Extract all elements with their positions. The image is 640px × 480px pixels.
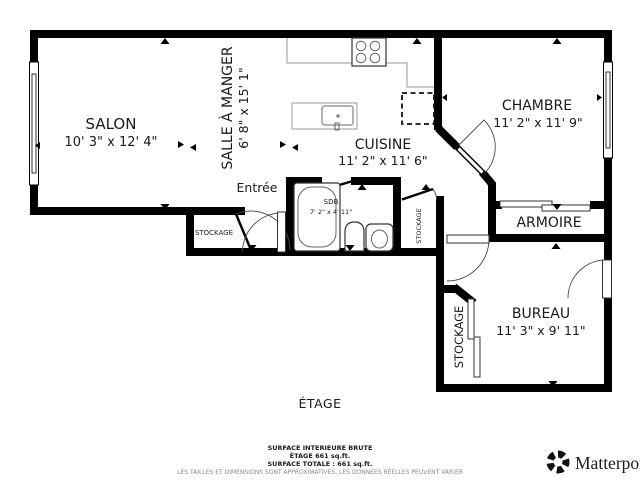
dimension-arrow-icon	[178, 141, 184, 148]
door-icon-couloir	[447, 235, 489, 281]
room-label-sdb: SDB	[324, 198, 339, 206]
room-label-entree: Entrée	[237, 180, 278, 195]
window-icon-left	[30, 62, 39, 185]
room-label-stockage-salon: STOCKAGE	[195, 229, 233, 237]
matterport-wordmark: Matterport	[575, 453, 640, 473]
measure-tick-icon	[413, 38, 422, 44]
room-label-salon: SALON	[86, 115, 137, 133]
footer: ÉTAGE SURFACE INTERIEURE BRUTE ÉTAGE 661…	[177, 396, 463, 476]
floor-plan-page: SALON 10' 3" x 12' 4" SALLE À MANGER 6' …	[0, 0, 640, 480]
door-icon-hall-closet	[402, 189, 437, 200]
room-dims-cuisine: 11' 2" x 11' 6"	[338, 153, 427, 168]
room-dims-salon: 10' 3" x 12' 4"	[65, 135, 158, 150]
stove-icon	[352, 38, 386, 66]
room-dims-salle-a-manger: 6' 8" x 15' 1"	[236, 67, 251, 148]
bathtub-icon	[294, 183, 340, 251]
sliding-door-icon-bureau-closet	[468, 299, 480, 377]
room-dims-chambre: 11' 2" x 11' 9"	[493, 115, 582, 130]
footer-etage-surface: ÉTAGE 661 sq.ft.	[290, 451, 351, 460]
footer-surface-brute: SURFACE INTERIEURE BRUTE	[268, 444, 373, 452]
door-icon-bureau	[568, 260, 612, 298]
dimension-arrow-icon	[292, 144, 298, 151]
toilet-icon	[366, 224, 393, 251]
measure-tick-icon	[161, 38, 170, 44]
room-label-salle-a-manger: SALLE À MANGER	[219, 46, 236, 169]
matterport-logo-icon	[548, 452, 568, 472]
room-label-stockage-bureau: STOCKAGE	[452, 306, 466, 369]
footer-disclaimer: LES TAILLES ET DIMENSIONS SONT APPROXIMA…	[177, 468, 463, 476]
kitchen-fixtures	[287, 38, 434, 130]
room-label-stockage-couloir: STOCKAGE	[415, 208, 423, 243]
dimension-arrow-icon	[280, 141, 286, 148]
room-dims-sdb: 7' 2" x 4' 11"	[310, 208, 352, 216]
room-label-armoire: ARMOIRE	[516, 215, 581, 231]
island-sink-icon	[292, 103, 357, 130]
measure-tick-icon	[552, 243, 561, 249]
floor-plan-svg: SALON 10' 3" x 12' 4" SALLE À MANGER 6' …	[0, 0, 640, 480]
dimension-arrow-icon	[190, 144, 196, 151]
room-label-cuisine: CUISINE	[355, 137, 412, 153]
room-label-chambre: CHAMBRE	[502, 98, 572, 114]
dimension-arrow-icon	[597, 94, 602, 101]
room-dims-bureau: 11' 3" x 9' 11"	[496, 323, 585, 338]
brand-logo: Matterport	[548, 452, 640, 473]
bathroom-fixtures	[294, 183, 393, 251]
floor-title: ÉTAGE	[299, 396, 342, 411]
window-icon-right	[604, 62, 613, 158]
footer-surface-totale: SURFACE TOTALE : 661 sq.ft.	[267, 460, 372, 468]
measure-tick-icon	[553, 38, 562, 44]
dimension-arrow-icon	[442, 94, 447, 101]
sliding-door-icon-armoire	[500, 201, 590, 211]
measure-tick-icon	[422, 184, 431, 190]
fridge-icon	[402, 93, 434, 124]
room-label-bureau: BUREAU	[512, 306, 570, 322]
door-icon-chambre	[457, 120, 495, 174]
